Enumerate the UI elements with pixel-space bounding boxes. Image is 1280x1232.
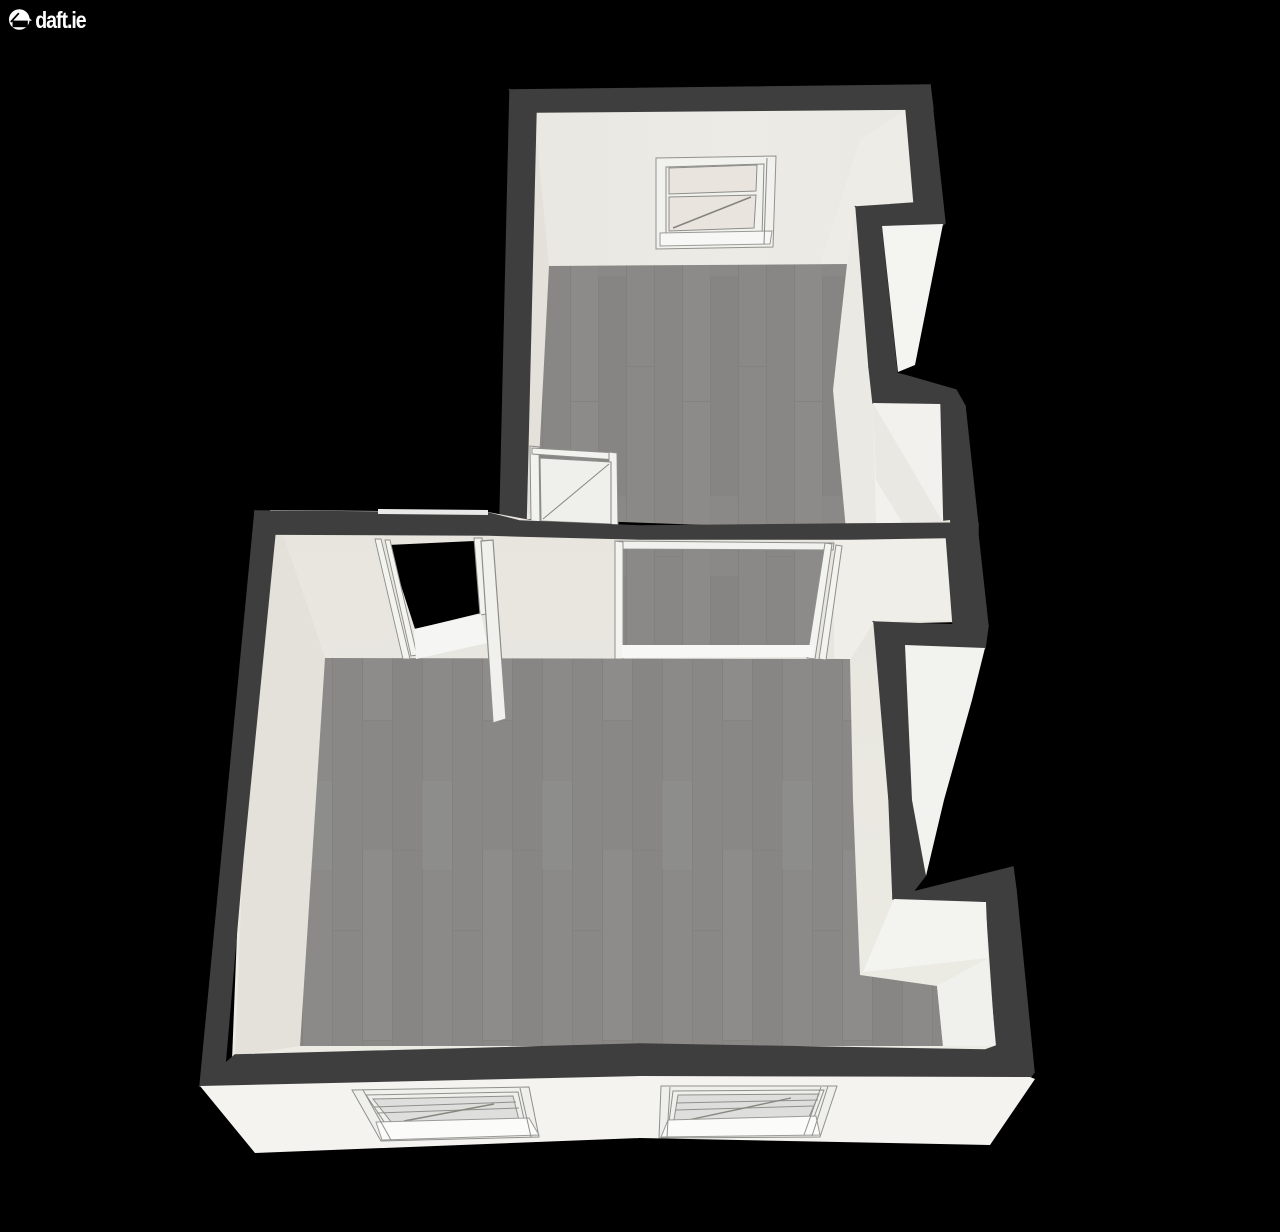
svg-text:daft.ie: daft.ie (35, 8, 87, 34)
